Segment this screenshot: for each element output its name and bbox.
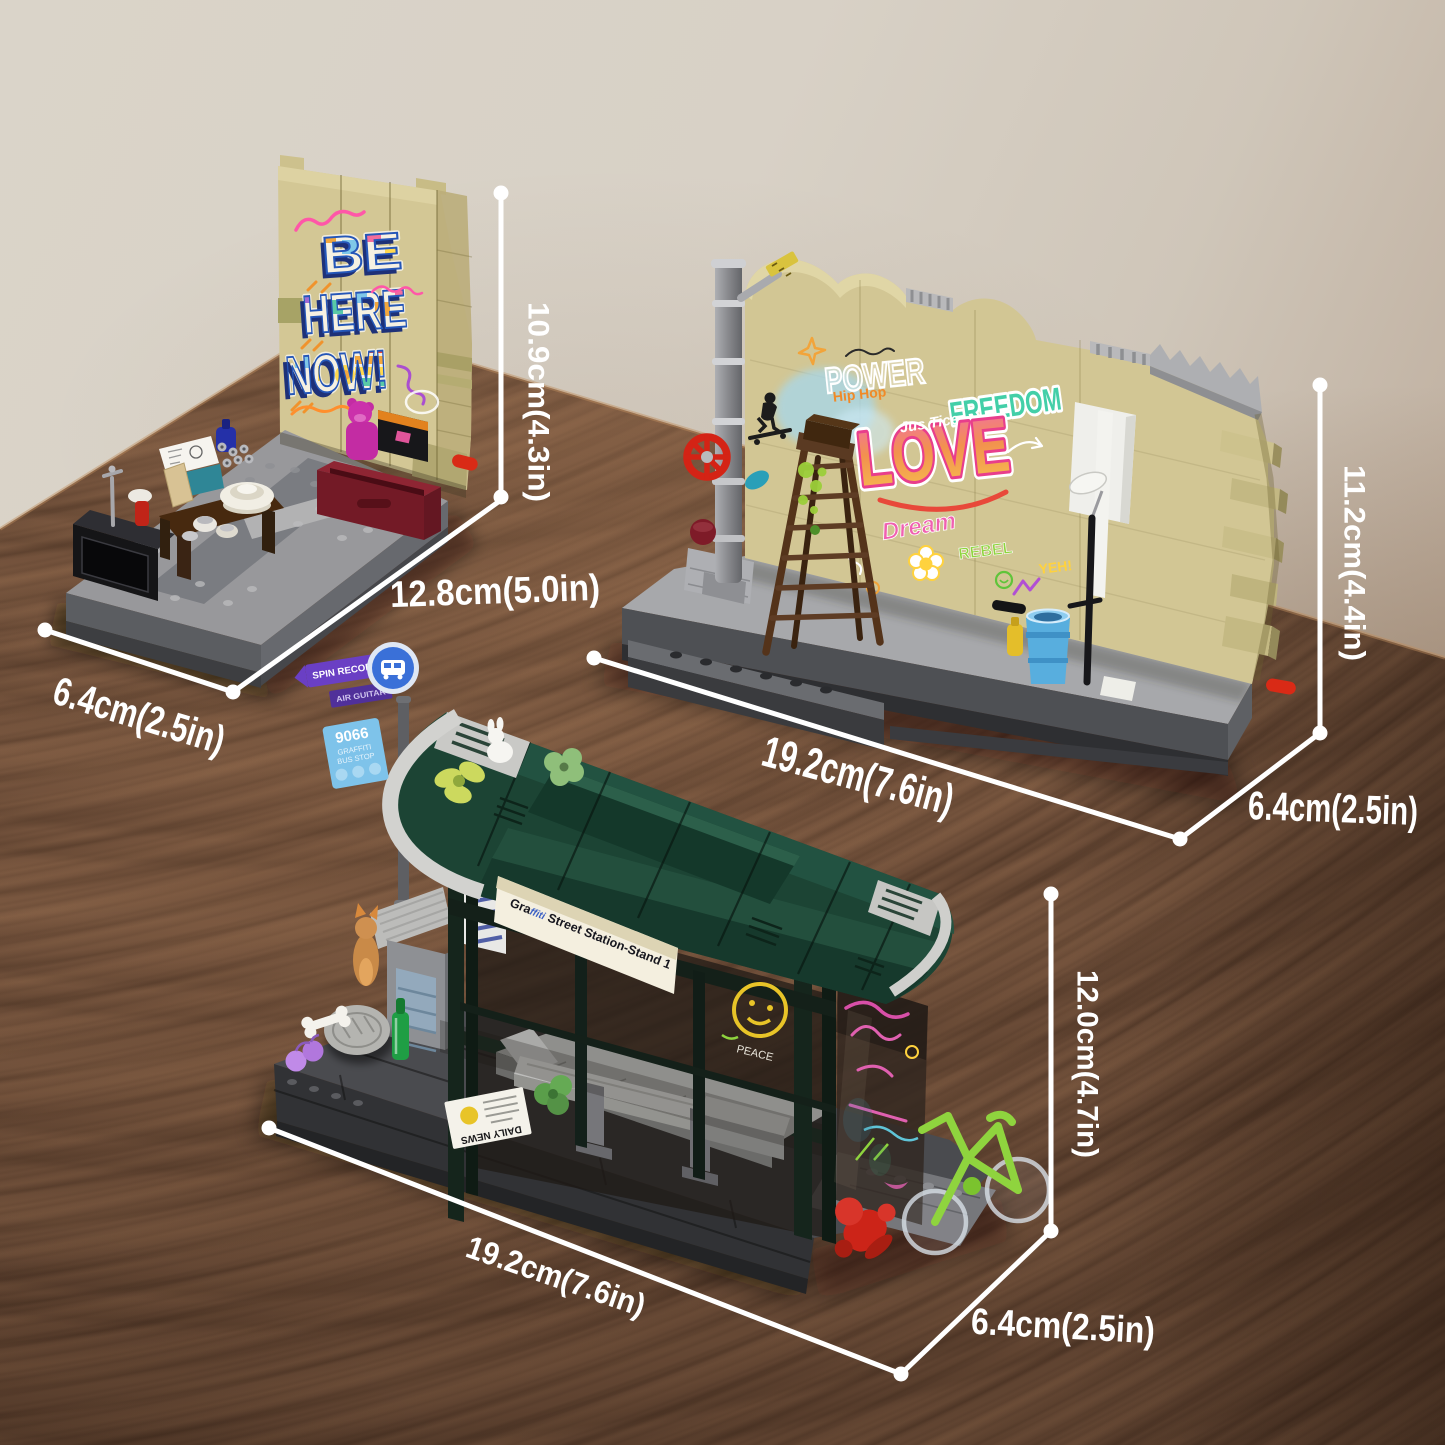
- svg-text:6.4cm(2.5in): 6.4cm(2.5in): [1247, 784, 1418, 834]
- svg-text:6.4cm(2.5in): 6.4cm(2.5in): [970, 1301, 1156, 1352]
- svg-text:HERE: HERE: [301, 278, 409, 345]
- svg-text:12.0cm(4.7in): 12.0cm(4.7in): [1071, 970, 1104, 1158]
- svg-text:NOW!: NOW!: [284, 340, 390, 407]
- svg-text:BE: BE: [320, 222, 404, 285]
- svg-text:11.2cm(4.4in): 11.2cm(4.4in): [1338, 465, 1371, 661]
- svg-text:10.9cm(4.3in): 10.9cm(4.3in): [522, 302, 555, 502]
- svg-text:12.8cm(5.0in): 12.8cm(5.0in): [389, 567, 600, 615]
